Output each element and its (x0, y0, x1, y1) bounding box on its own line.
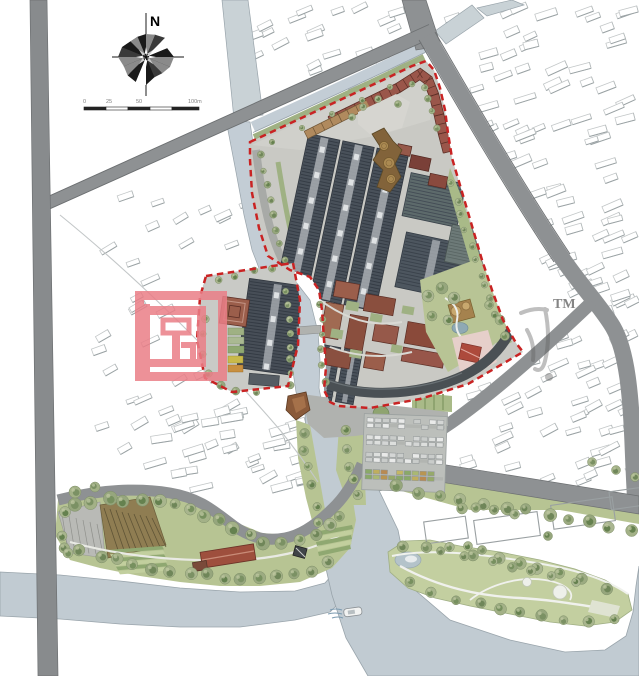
svg-text:0: 0 (83, 99, 86, 105)
svg-text:25: 25 (106, 99, 112, 105)
svg-text:50: 50 (136, 99, 142, 105)
svg-text:TM: TM (553, 297, 576, 312)
svg-text:N: N (150, 13, 160, 29)
svg-text:100m: 100m (188, 99, 202, 105)
